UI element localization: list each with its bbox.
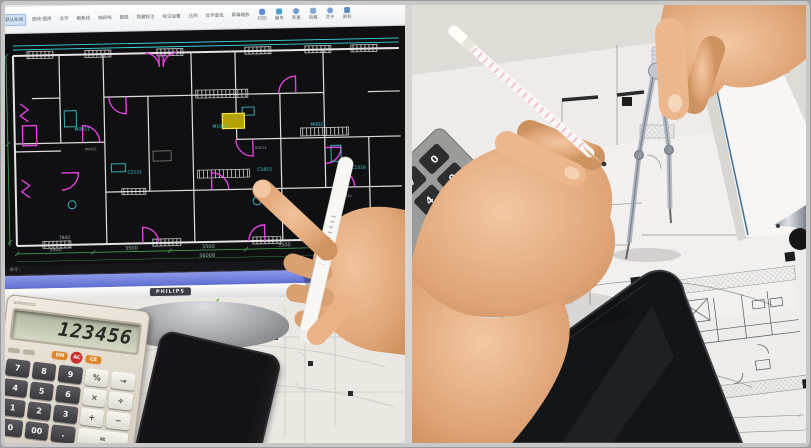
cad-menu-item: 比例: [187, 11, 200, 21]
op-key: %: [84, 368, 109, 388]
monitor: 默认布局 图块·图库 文字 截断线 轴网线 圆弧 隐藏标注 标注设置 比例 文字…: [5, 5, 405, 303]
digit-key: 2: [26, 401, 51, 421]
printer-icon: [259, 8, 265, 14]
svg-text:M0921: M0921: [74, 126, 90, 132]
left-photo-cad-monitor: 默认布局 图块·图库 文字 截断线 轴网线 圆弧 隐藏标注 标注设置 比例 文字…: [5, 5, 405, 443]
photo-collage: 默认布局 图块·图库 文字 截断线 轴网线 圆弧 隐藏标注 标注设置 比例 文字…: [0, 0, 811, 448]
calculator-display: 123456: [57, 318, 134, 349]
cad-menu-item: 默认布局: [5, 14, 26, 26]
memory-key: [8, 347, 21, 353]
digit-key: 9: [58, 365, 84, 385]
svg-text:M1021: M1021: [212, 124, 228, 130]
memory-key: [23, 349, 36, 355]
digit-key: 4: [5, 378, 28, 398]
thumb-nail: [668, 94, 682, 112]
svg-text:7800: 7800: [59, 235, 71, 241]
svg-text:M0821: M0821: [340, 194, 352, 198]
svg-text:M0821: M0821: [310, 121, 326, 127]
monitor-brand-badge: PHILIPS: [150, 287, 191, 296]
digit-key: 3: [53, 404, 79, 424]
walls-inner: [13, 48, 403, 246]
digit-key: 5: [29, 381, 54, 401]
index-finger: [694, 49, 712, 101]
ce-key: CE: [85, 355, 101, 365]
op-key: ×: [82, 388, 107, 408]
svg-text:3500: 3500: [125, 245, 138, 251]
cad-menu-item-with-icon: 编号: [272, 6, 285, 23]
cad-menu-item: 截断线: [75, 13, 93, 23]
cad-floorplan: M0921 C2121 M1021 C1815 M0821 C1518 M092…: [5, 26, 405, 263]
cad-menu-item: 图块·图库: [30, 14, 54, 24]
svg-text:3500: 3500: [278, 242, 291, 248]
on-key: ON: [51, 351, 68, 361]
cad-menu-item: 文字: [58, 14, 71, 24]
digit-key: 1: [5, 398, 25, 418]
svg-text:M0921: M0921: [85, 147, 97, 151]
cad-menu-item-with-icon: 资料: [340, 5, 353, 22]
equals-key: =: [77, 428, 129, 443]
digit-key: 8: [31, 361, 56, 381]
style-icon: [310, 7, 316, 13]
cad-menu-item-with-icon: 打印: [255, 6, 268, 23]
right-photo-drafting: 3400 2000: [412, 5, 806, 443]
cad-menu-item-with-icon: 关于: [323, 5, 336, 22]
dimension-lines: [5, 46, 403, 262]
svg-text:3500: 3500: [49, 247, 62, 253]
op-key: →: [110, 371, 136, 391]
user-icon: [344, 6, 350, 12]
svg-text:C2121: C2121: [127, 169, 142, 175]
calculator: SUNWOOD 123456 ON AC CE 7 8 9 % → 4 5 6 …: [5, 294, 151, 443]
window-hatches: [27, 44, 381, 248]
calculator-keypad: 7 8 9 % → 4 5 6 × ÷ 1 2 3 + − 0 00 . =: [5, 358, 136, 443]
refresh-icon: [293, 8, 299, 14]
cad-menu-item: 隐藏标注: [135, 12, 157, 22]
cad-menu-item-with-icon: 风格: [306, 5, 319, 22]
thumb: [670, 33, 674, 105]
panel-divider: [405, 5, 412, 443]
ac-key: AC: [70, 351, 83, 364]
cad-menu-item: 文字查找: [204, 11, 226, 21]
cad-menu-item: 标注设置: [161, 11, 183, 21]
svg-text:M1021: M1021: [255, 146, 267, 150]
dimension-labels: 3500 3500 3500 3500 3500 56008 7800: [49, 229, 367, 263]
svg-text:C1518: C1518: [351, 165, 366, 171]
digit-key: 7: [5, 358, 30, 378]
furniture: [153, 151, 171, 161]
svg-text:3500: 3500: [202, 244, 215, 250]
cad-menu-item-with-icon: 变更: [289, 5, 302, 22]
svg-text:3500: 3500: [354, 241, 367, 247]
door-arcs: [19, 49, 356, 246]
cad-menu-item: 轴网线: [96, 13, 114, 23]
cad-drawing-screen: M0921 C2121 M1021 C1815 M0821 C1518 M092…: [5, 26, 405, 276]
svg-text:56008: 56008: [199, 253, 215, 259]
svg-text:C1815: C1815: [257, 167, 272, 173]
op-key: ÷: [108, 391, 134, 411]
drafting-scene: 3400 2000: [412, 5, 806, 443]
info-icon: [327, 7, 333, 13]
op-key: −: [106, 411, 132, 431]
cad-menu-item: 屏幕缩放: [229, 10, 251, 20]
op-key: +: [79, 408, 104, 428]
number-icon: [276, 8, 282, 14]
walls-outer: [13, 48, 403, 246]
digit-key: 00: [24, 421, 49, 441]
cad-menu-item: 圆弧: [118, 13, 131, 23]
digit-key: .: [50, 424, 76, 443]
bezel-sticker: [391, 267, 405, 299]
digit-key: 0: [5, 418, 23, 438]
digit-key: 6: [55, 385, 81, 405]
